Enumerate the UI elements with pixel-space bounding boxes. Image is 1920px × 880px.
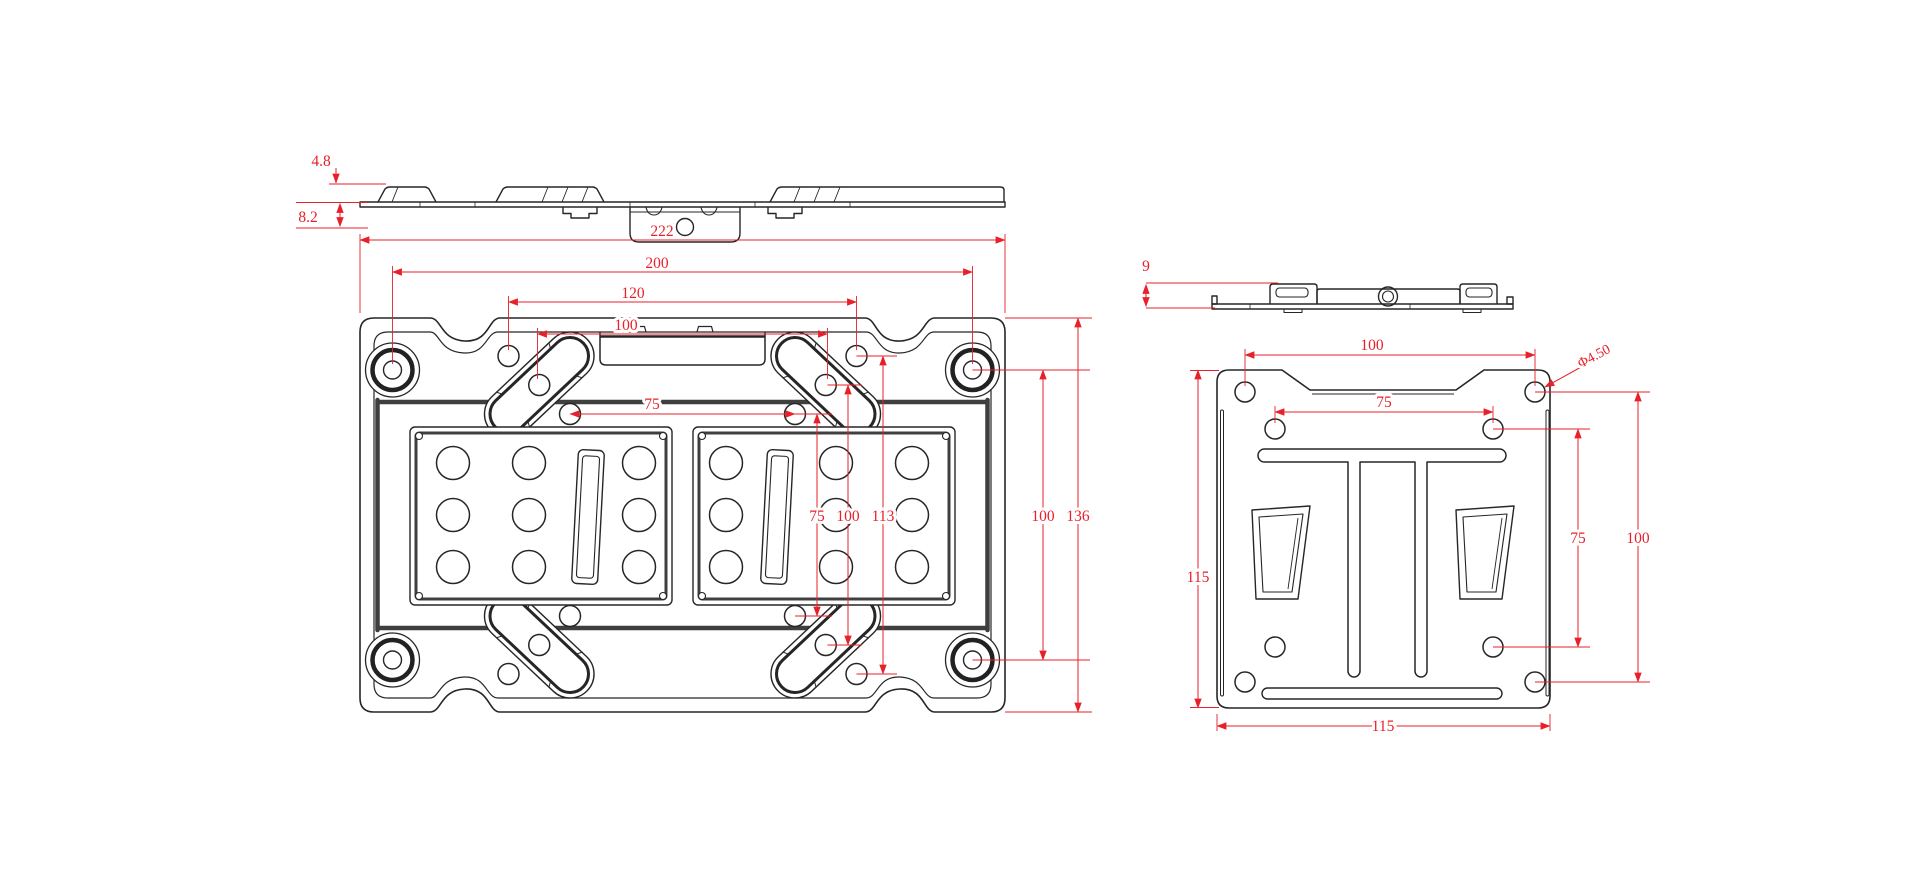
dim-slot-outer-span-label: 120 bbox=[621, 285, 645, 302]
slanted-cutout-right bbox=[1456, 506, 1514, 599]
dim-hook-depth-label: 8.2 bbox=[298, 209, 317, 226]
dim-profile-depth-label: 9 bbox=[1142, 258, 1150, 275]
flange-bump-right bbox=[770, 187, 1004, 202]
edge-slit-right bbox=[1546, 410, 1549, 696]
edge-slit-left bbox=[1221, 410, 1224, 696]
corner-mounting-holes bbox=[1235, 382, 1545, 692]
monitor-plate-side-view bbox=[1212, 284, 1513, 313]
center-hole-profile bbox=[1379, 287, 1398, 306]
plate-body-profile bbox=[1212, 304, 1513, 309]
slanted-cutout-left bbox=[1252, 506, 1310, 599]
inner-mounting-holes bbox=[1265, 419, 1503, 657]
monitor-plate-front-view bbox=[1217, 370, 1550, 708]
wall-plate-front-view bbox=[360, 318, 1005, 712]
bracket-hole-profile bbox=[677, 219, 694, 236]
spring-clip-right bbox=[701, 208, 717, 216]
dim-corner-hole-vertical-span-label: 100 bbox=[1031, 508, 1055, 525]
hook-tab-left bbox=[563, 207, 597, 218]
dim-outer-vertical-span-label: 113 bbox=[872, 508, 895, 525]
dim-flange-height-label: 4.8 bbox=[311, 153, 331, 170]
plate-outline bbox=[1217, 370, 1550, 708]
dim-overall-width-label: 115 bbox=[1372, 718, 1395, 735]
t-shaped-slot bbox=[1258, 449, 1506, 677]
dim-corner-hole-span-label: 200 bbox=[645, 255, 669, 272]
end-lip-left bbox=[1212, 296, 1217, 304]
dim-inner-hole-span-label: 75 bbox=[1376, 394, 1392, 411]
dim-overall-width-label: 222 bbox=[650, 223, 673, 240]
dim-overall-height-label: 115 bbox=[1187, 569, 1210, 586]
vesa-bracket-drawing: 4.8 8.2 bbox=[0, 0, 1920, 880]
dim-slot-middle-span-label: 100 bbox=[614, 317, 638, 334]
dim-hole-diameter-label: Φ4.50 bbox=[1576, 342, 1614, 372]
dim-inner-vertical-span-label: 75 bbox=[809, 508, 825, 525]
wall-plate-side-view bbox=[360, 187, 1005, 242]
flange-bump-left bbox=[378, 187, 436, 202]
hook-tab-right bbox=[768, 207, 802, 218]
flange-bump-middle bbox=[496, 187, 604, 202]
dim-corner-hole-vertical-span-label: 100 bbox=[1626, 530, 1650, 547]
dim-slot-inner-span-label: 75 bbox=[644, 396, 660, 413]
hole-panel-left bbox=[410, 427, 672, 605]
end-lip-right bbox=[1507, 297, 1513, 304]
dim-overall-height-label: 136 bbox=[1066, 508, 1090, 525]
technical-drawing-sheet: 4.8 8.2 bbox=[0, 0, 1920, 880]
spring-clip-left bbox=[646, 208, 662, 216]
dim-corner-hole-span-label: 100 bbox=[1360, 337, 1384, 354]
corner-boss bbox=[366, 633, 420, 687]
plate-body-profile bbox=[360, 202, 1005, 207]
bottom-slot bbox=[1262, 688, 1502, 699]
dim-inner-hole-vertical-span-label: 75 bbox=[1570, 530, 1586, 547]
dim-middle-vertical-span-label: 100 bbox=[836, 508, 860, 525]
bracket-profile-left bbox=[1270, 284, 1317, 304]
